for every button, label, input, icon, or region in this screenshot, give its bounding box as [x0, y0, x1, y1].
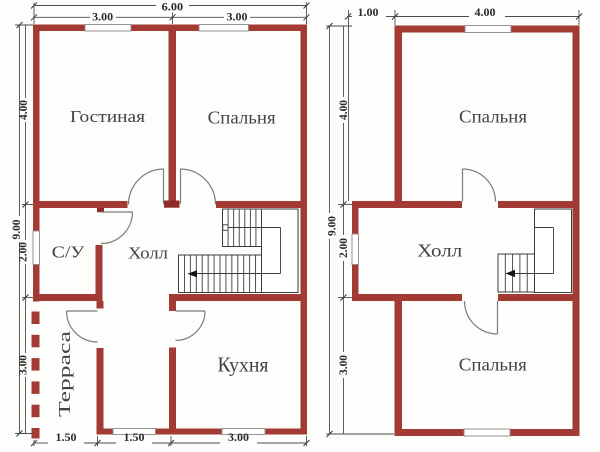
svg-text:4.00: 4.00 [475, 7, 496, 19]
svg-text:С/У: С/У [52, 243, 85, 262]
svg-text:9.00: 9.00 [11, 219, 23, 239]
svg-text:3.00: 3.00 [18, 355, 30, 375]
svg-text:4.00: 4.00 [18, 100, 30, 120]
svg-text:3.00: 3.00 [338, 355, 350, 375]
svg-text:1.50: 1.50 [124, 432, 145, 444]
svg-text:Спальня: Спальня [459, 107, 527, 127]
svg-text:3.00: 3.00 [92, 11, 113, 23]
svg-text:1.00: 1.00 [358, 7, 379, 19]
svg-text:Спальня: Спальня [459, 355, 527, 375]
svg-text:Холл: Холл [128, 243, 169, 262]
svg-text:Кухня: Кухня [218, 353, 269, 377]
svg-text:2.00: 2.00 [18, 242, 30, 262]
svg-text:6.00: 6.00 [162, 2, 184, 14]
svg-text:2.00: 2.00 [338, 238, 350, 258]
svg-text:Спальня: Спальня [208, 107, 276, 127]
svg-text:3.00: 3.00 [227, 11, 248, 23]
svg-text:9.00: 9.00 [327, 216, 339, 236]
svg-text:1.50: 1.50 [56, 432, 77, 444]
svg-text:Холл: Холл [417, 240, 462, 260]
svg-text:3.00: 3.00 [228, 432, 249, 444]
svg-text:Гостиная: Гостиная [70, 107, 145, 126]
svg-text:Терраса: Терраса [55, 330, 74, 417]
svg-text:4.00: 4.00 [338, 100, 350, 120]
